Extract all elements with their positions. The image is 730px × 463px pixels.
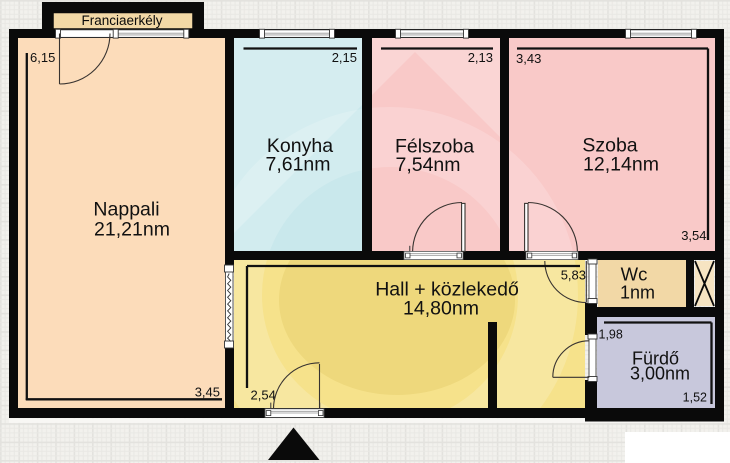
svg-text:3,54: 3,54 (681, 228, 706, 243)
svg-text:6,15: 6,15 (30, 50, 55, 65)
svg-text:21,21nm: 21,21nm (94, 219, 170, 241)
svg-text:Wc: Wc (621, 264, 648, 285)
svg-text:1nm: 1nm (620, 283, 655, 303)
svg-text:2,13: 2,13 (468, 50, 493, 65)
svg-text:12,14nm: 12,14nm (583, 154, 659, 176)
svg-text:2,15: 2,15 (332, 50, 357, 65)
svg-text:2,54: 2,54 (251, 388, 276, 403)
svg-text:3,43: 3,43 (516, 51, 541, 66)
svg-text:Franciaerkély: Franciaerkély (81, 13, 162, 28)
svg-text:3,00nm: 3,00nm (630, 364, 690, 384)
svg-text:7,54nm: 7,54nm (395, 154, 460, 176)
svg-text:Nappali: Nappali (93, 199, 159, 221)
svg-text:7,61nm: 7,61nm (265, 154, 330, 176)
svg-text:14,80nm: 14,80nm (403, 298, 479, 320)
svg-text:1,52: 1,52 (683, 391, 707, 405)
svg-text:5,83: 5,83 (561, 268, 586, 283)
svg-text:3,45: 3,45 (195, 385, 220, 400)
svg-text:1,98: 1,98 (599, 328, 623, 342)
